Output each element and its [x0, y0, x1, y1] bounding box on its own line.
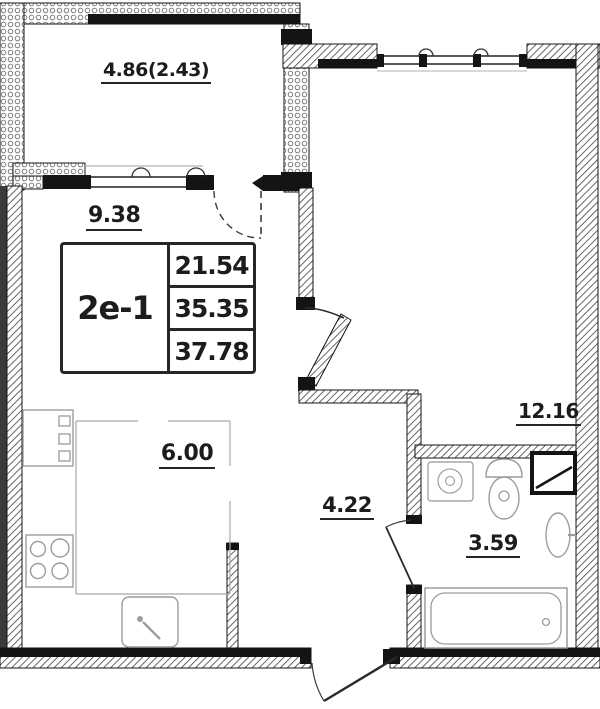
floor-plan: 4.86(2.43) 9.38 6.00 12.16 4.22 3.59 2e-… [0, 0, 600, 709]
apartment-areas-column: 21.54 35.35 37.78 [170, 245, 253, 371]
washing-machine-drum-center [446, 477, 455, 486]
stove-burner-2 [51, 539, 69, 557]
balcony-window-end-tick [83, 175, 91, 189]
kitchen-counter-module-2 [59, 434, 70, 444]
bathtub-inner [431, 593, 561, 644]
apartment-type-cell: 2e-1 [63, 245, 170, 371]
stove-burner-3 [31, 564, 46, 579]
wall-divider-left-black-band [43, 175, 85, 189]
kitchen-area-value: 6.00 [159, 441, 215, 469]
kitchen-sink-icon [122, 597, 178, 647]
wall-hall-top [299, 390, 418, 403]
room-window-tick-1 [377, 54, 384, 67]
washing-machine-drum [438, 469, 462, 493]
bath-door-leaf [386, 527, 414, 588]
wall-divider-left [13, 163, 85, 176]
toilet-flush [499, 491, 509, 501]
area-apartment-cell: 35.35 [170, 285, 253, 328]
kitchen-counter-module-3 [59, 451, 70, 461]
living-area-label: 9.38 [86, 203, 142, 231]
wall-room-top-left-black-band [318, 59, 377, 68]
wall-diagonal-cap [298, 377, 315, 391]
balcony-window-vent-arc-1 [132, 168, 150, 177]
entrance-door-swing-arc [312, 663, 324, 701]
wall-kitchen-stub-cap [226, 543, 239, 550]
hall-area-value: 4.22 [320, 493, 374, 520]
balcony-door-swing-arc [214, 191, 261, 238]
room-window-tick-4 [519, 54, 527, 67]
wall-right-outer [576, 44, 598, 668]
wall-bottom-right-cap [383, 649, 400, 664]
toilet-tank [486, 459, 522, 477]
kitchen-counter-module-1 [59, 416, 70, 426]
wall-room-left [299, 188, 313, 308]
room-area-label: 12.16 [516, 399, 578, 426]
room-window-tick-2 [419, 54, 427, 67]
wall-divider-right-point [252, 176, 263, 191]
wall-bottom-right-black-band [390, 648, 600, 657]
wall-room-top-right-black-band [527, 59, 579, 68]
apartment-stamp-table: 2e-1 21.54 35.35 37.78 [60, 242, 256, 374]
room-area-value: 12.16 [516, 399, 581, 426]
toilet-icon [489, 477, 519, 519]
bath-sink-icon [546, 513, 570, 557]
wall-diagonal [306, 314, 351, 386]
bath-area-value: 3.59 [466, 531, 520, 558]
wall-balcony-left [0, 3, 24, 190]
wall-balcony-top-black-band [88, 14, 300, 24]
wall-bath-left-lower [407, 585, 421, 650]
wall-corner-cap-top-right-balcony [281, 29, 312, 45]
area-living-cell: 21.54 [170, 245, 253, 285]
wall-left-main [7, 186, 22, 668]
wall-hall-right-cap [406, 515, 422, 524]
wall-bottom-left-cap [300, 648, 311, 664]
washing-machine-icon [428, 462, 473, 501]
kitchen-area-label: 6.00 [158, 441, 216, 469]
balcony-area-label: 4.86(2.43) [98, 59, 214, 84]
entrance-door-leaf [324, 657, 397, 701]
balcony-window-stub [186, 175, 214, 190]
wall-kitchen-stub [227, 543, 238, 648]
hall-area-label: 4.22 [318, 493, 376, 520]
bathtub-drain [543, 619, 550, 626]
living-area-value: 9.38 [86, 203, 142, 231]
bath-area-label: 3.59 [464, 531, 522, 558]
balcony-area-value: 4.86(2.43) [101, 59, 211, 84]
area-total-cell: 37.78 [170, 328, 253, 371]
stove-burner-4 [52, 563, 68, 579]
kitchen-sink-faucet-dot [137, 616, 143, 622]
kitchen-counter [23, 410, 73, 466]
wall-bottom-left-black-band [0, 648, 311, 657]
stove-burner-1 [31, 542, 46, 557]
